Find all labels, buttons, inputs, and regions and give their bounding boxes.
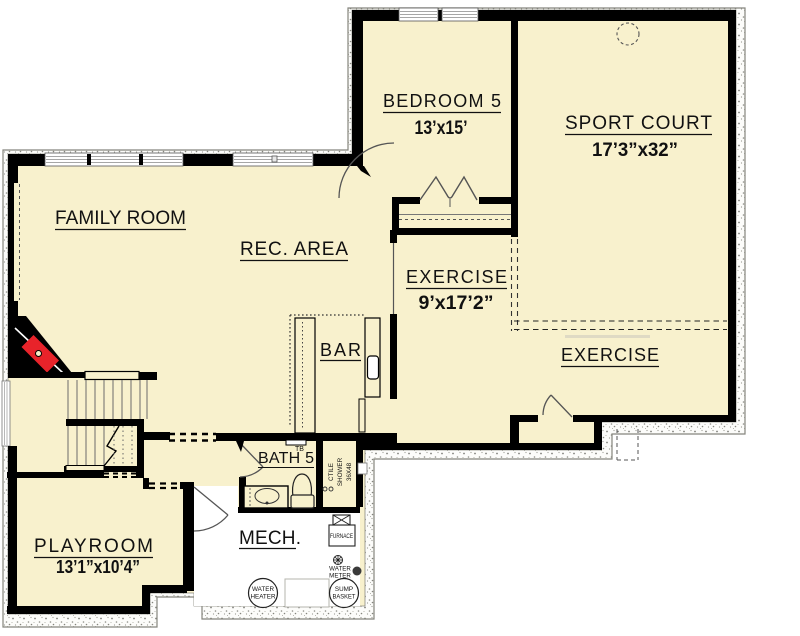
svg-text:9’x17’2”: 9’x17’2” (419, 293, 494, 314)
svg-text:13’1”x10’4”: 13’1”x10’4” (56, 557, 140, 577)
svg-text:WATER: WATER (252, 586, 274, 593)
svg-text:EXERCISE: EXERCISE (406, 267, 507, 287)
svg-text:BAR: BAR (320, 340, 361, 360)
svg-text:CTILE: CTILE (328, 463, 335, 481)
svg-text:17’3”x32”: 17’3”x32” (592, 140, 678, 161)
svg-text:FAMILY ROOM: FAMILY ROOM (55, 208, 186, 229)
svg-text:36X48: 36X48 (346, 462, 353, 481)
svg-text:TB: TB (295, 446, 304, 453)
svg-text:FURNACE: FURNACE (330, 533, 353, 540)
svg-text:13’x15’: 13’x15’ (415, 118, 468, 139)
svg-text:BATH 5: BATH 5 (258, 450, 314, 467)
svg-text:BEDROOM 5: BEDROOM 5 (383, 91, 501, 111)
svg-text:WATER: WATER (329, 566, 351, 573)
svg-text:SPORT COURT: SPORT COURT (565, 113, 712, 134)
svg-text:EXERCISE: EXERCISE (561, 345, 659, 365)
svg-text:SHOWER: SHOWER (337, 457, 344, 486)
svg-text:PLAYROOM: PLAYROOM (34, 536, 153, 557)
svg-text:HEATER: HEATER (250, 594, 276, 601)
svg-text:REC. AREA: REC. AREA (240, 239, 348, 260)
svg-text:BASKET: BASKET (333, 594, 356, 601)
svg-text:SUMP: SUMP (335, 586, 353, 593)
svg-text:MECH.: MECH. (239, 528, 301, 549)
